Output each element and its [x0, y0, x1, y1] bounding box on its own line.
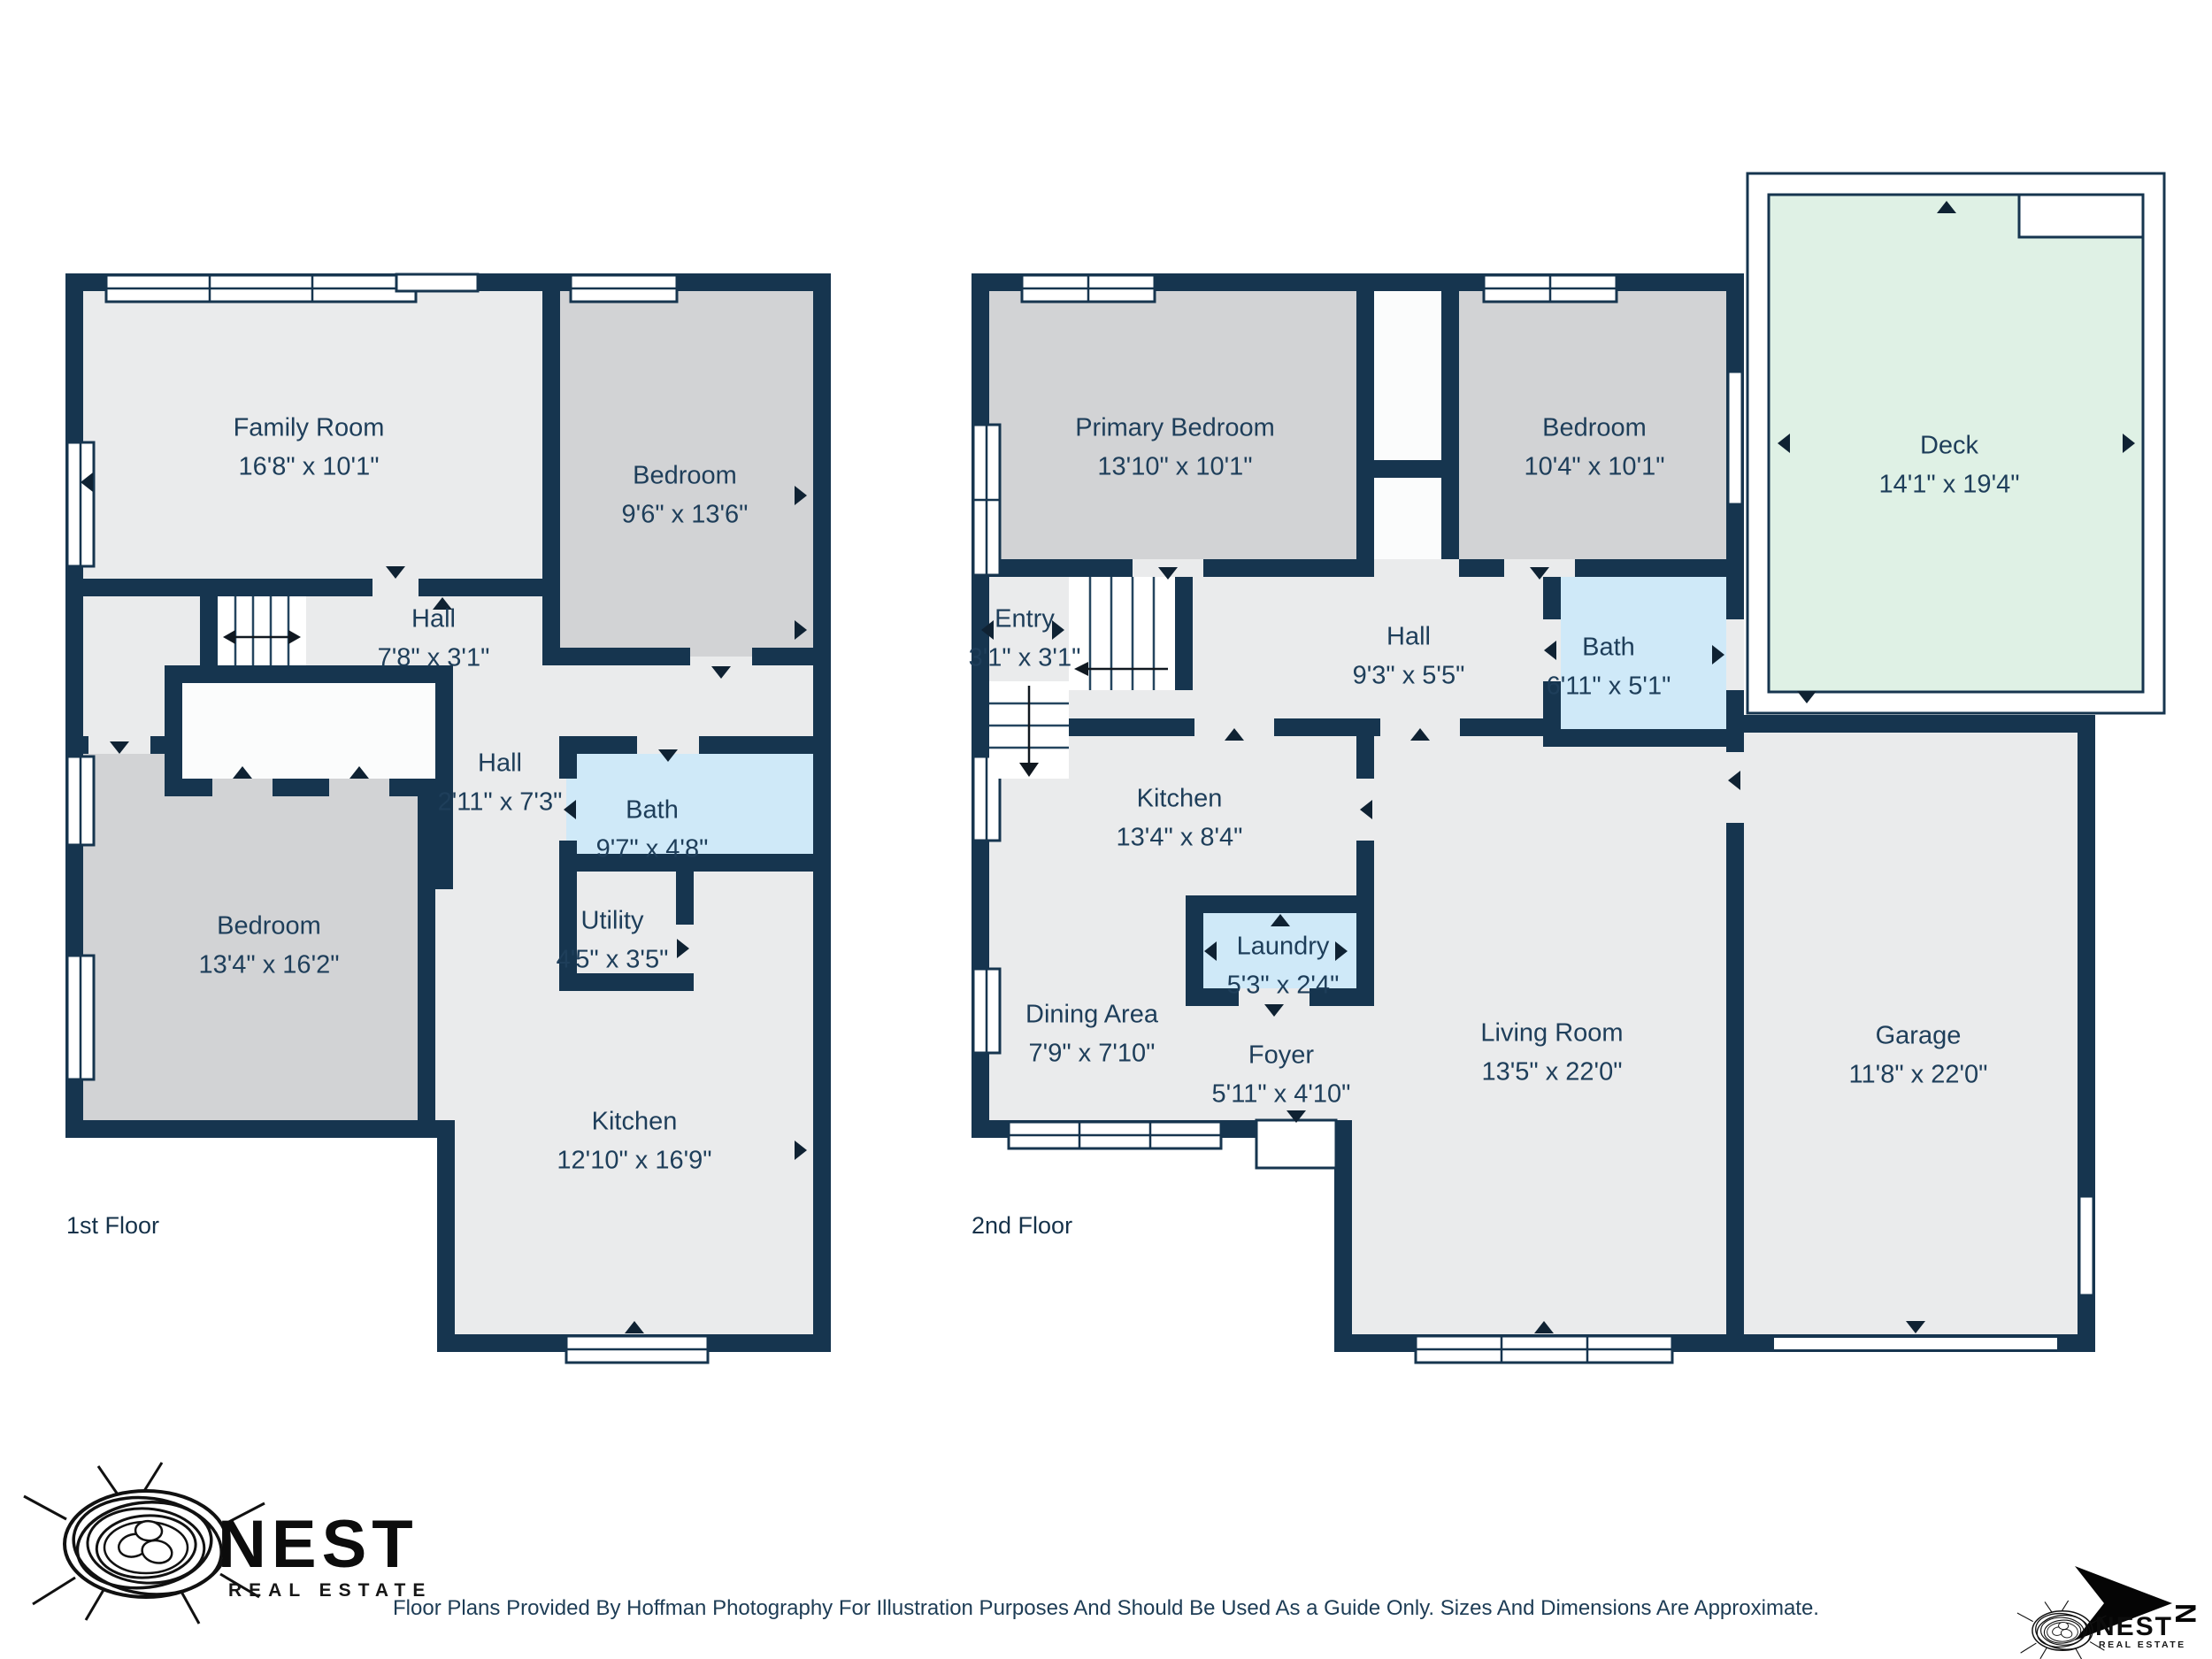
room-dims: 9'6" x 13'6": [622, 495, 749, 534]
wall-segment: [418, 796, 435, 1138]
wall-segment: [1374, 460, 1441, 478]
wall-segment: [1356, 913, 1374, 988]
room-dims: 7'9" x 7'10": [1025, 1034, 1158, 1073]
room-name: Bedroom: [1524, 410, 1664, 449]
wall-segment: [1575, 559, 1726, 577]
garage-side-window: [2079, 1196, 2093, 1295]
floor1-stairs: [218, 596, 306, 665]
room-name: Foyer: [1212, 1037, 1351, 1076]
room-label-hall-1f: Hall 7'8" x 3'1": [378, 601, 490, 678]
wall-segment: [1356, 841, 1374, 895]
room-name: Kitchen: [557, 1103, 711, 1142]
room-dims: 7'8" x 3'1": [378, 639, 490, 678]
wall-segment: [1186, 895, 1374, 913]
room-label-bedroom-1f: Bedroom 9'6" x 13'6": [622, 457, 749, 534]
stairs-area: [218, 596, 306, 665]
room-name: Hall: [438, 745, 563, 784]
wall-segment: [542, 273, 560, 665]
room-label-kitchen-1f: Kitchen 12'10" x 16'9": [557, 1103, 711, 1180]
room-dims: 12'10" x 16'9": [557, 1141, 711, 1180]
room-name: Utility: [557, 902, 669, 941]
wall-segment: [1726, 823, 1744, 1352]
room-name: Entry: [969, 601, 1081, 640]
wall-segment: [165, 779, 212, 796]
closet-under-stairs: [182, 683, 435, 779]
room-dims: 5'3" x 2'4": [1227, 966, 1340, 1005]
room-name: Bath: [596, 792, 709, 831]
floor-plan-page: N Family Room 16'8" x 10'1" Bedroom 9'6"…: [0, 0, 2212, 1659]
second-floor-plan: [972, 173, 2164, 1363]
wall-segment: [1336, 1120, 1352, 1138]
window: [1728, 372, 1742, 504]
front-door-opening: [1256, 1120, 1336, 1168]
room-label-kitchen-2f: Kitchen 13'4" x 8'4": [1117, 780, 1243, 857]
window: [396, 274, 478, 291]
wall-segment: [1356, 291, 1374, 559]
wall-segment: [1744, 715, 2095, 733]
room-name: Hall: [1353, 618, 1465, 657]
room-name: Primary Bedroom: [1075, 410, 1275, 449]
wall-segment: [1203, 559, 1374, 577]
wall-segment: [419, 579, 560, 596]
room-label-bedroom-2f: Bedroom 10'4" x 10'1": [1524, 410, 1664, 487]
wall-segment: [273, 779, 329, 796]
room-label-hall-2f: Hall 9'3" x 5'5": [1353, 618, 1465, 695]
room-dims: 14'1" x 19'4": [1878, 465, 2019, 504]
room-label-primary-bedroom: Primary Bedroom 13'10" x 10'1": [1075, 410, 1275, 487]
wall-segment: [699, 736, 813, 754]
wall-segment: [65, 1120, 455, 1138]
room-dims: 13'4" x 16'2": [198, 946, 339, 985]
room-label-laundry: Laundry 5'3" x 2'4": [1227, 928, 1340, 1005]
first-floor-title: 1st Floor: [66, 1212, 159, 1240]
second-floor-title: 2nd Floor: [972, 1212, 1072, 1240]
room-name: Bath: [1547, 629, 1671, 668]
room-dims: 10'4" x 10'1": [1524, 448, 1664, 487]
room-label-bath-1f: Bath 9'7" x 4'8": [596, 792, 709, 869]
room-dims: 5'11" x 4'10": [1212, 1075, 1351, 1114]
wall-segment: [1543, 577, 1561, 619]
wall-segment: [150, 736, 182, 754]
room-dims: 3'1" x 3'1": [969, 639, 1081, 678]
room-label-deck: Deck 14'1" x 19'4": [1878, 427, 2019, 504]
wall-segment: [165, 665, 182, 796]
room-name: Deck: [1878, 427, 2019, 466]
wall-segment: [1441, 291, 1459, 559]
nest-footer-subtitle: REAL ESTATE: [2099, 1640, 2186, 1650]
room-name: Kitchen: [1117, 780, 1243, 819]
room-label-bath-2f: Bath 6'11" x 5'1": [1547, 629, 1671, 706]
wall-segment: [1175, 577, 1193, 690]
wall-segment: [1274, 718, 1380, 736]
room-label-dining-area: Dining Area 7'9" x 7'10": [1025, 996, 1158, 1073]
room-dims: 13'4" x 8'4": [1117, 818, 1243, 857]
garage-door: [1774, 1338, 2057, 1349]
room-label-garage: Garage 11'8" x 22'0": [1849, 1018, 1988, 1094]
room-name: Dining Area: [1025, 996, 1158, 1035]
wall-segment: [542, 648, 690, 665]
room-label-hall-1f-lower: Hall 2'11" x 7'3": [438, 745, 563, 822]
room-dims: 13'10" x 10'1": [1075, 448, 1275, 487]
room-dims: 9'7" x 4'8": [596, 830, 709, 869]
room-label-foyer: Foyer 5'11" x 4'10": [1212, 1037, 1351, 1114]
floor-plan-drawing: N: [0, 0, 2212, 1659]
room-name: Living Room: [1480, 1015, 1623, 1054]
room-name: Bedroom: [198, 908, 339, 947]
room-name: Hall: [378, 601, 490, 640]
wall-segment: [1356, 736, 1374, 779]
disclaimer-text: Floor Plans Provided By Hoffman Photogra…: [0, 1596, 2212, 1621]
nest-footer-wordmark: NEST: [2095, 1612, 2173, 1642]
wall-segment: [559, 736, 637, 754]
room-name: Laundry: [1227, 928, 1340, 967]
room-dims: 4'5" x 3'5": [557, 941, 669, 979]
room-dims: 9'3" x 5'5": [1353, 657, 1465, 695]
room-name: Bedroom: [622, 457, 749, 496]
room-label-living-room: Living Room 13'5" x 22'0": [1480, 1015, 1623, 1092]
door-swing-arrow: [1797, 691, 1816, 703]
wall-segment: [752, 648, 831, 665]
room-label-entry: Entry 3'1" x 3'1": [969, 601, 1081, 678]
wall-segment: [437, 1120, 455, 1352]
room-dims: 11'8" x 22'0": [1849, 1056, 1988, 1094]
room-dims: 2'11" x 7'3": [438, 783, 563, 822]
wall-segment: [813, 273, 831, 1352]
room-label-bedroom-1f-lower: Bedroom 13'4" x 16'2": [198, 908, 339, 985]
closet-column: [1374, 291, 1441, 559]
wall-segment: [1543, 729, 1744, 747]
wall-segment: [1186, 913, 1203, 988]
wall-segment: [1459, 559, 1504, 577]
wall-segment: [65, 579, 373, 596]
room-dims: 6'11" x 5'1": [1547, 667, 1671, 706]
nest-logo-wordmark: NEST: [218, 1506, 419, 1583]
room-name: Family Room: [234, 410, 385, 449]
room-dims: 13'5" x 22'0": [1480, 1053, 1623, 1092]
wall-segment: [1334, 1138, 1352, 1352]
floor2-stairs-down: [989, 681, 1069, 779]
room-label-family-room: Family Room 16'8" x 10'1": [234, 410, 385, 487]
room-dims: 16'8" x 10'1": [234, 448, 385, 487]
room-name: Garage: [1849, 1018, 1988, 1056]
wall-segment: [65, 736, 88, 754]
floor2-stairs-up: [1069, 577, 1175, 690]
deck-stair-opening: [2019, 195, 2143, 237]
wall-segment: [676, 872, 694, 925]
room-label-utility: Utility 4'5" x 3'5": [557, 902, 669, 979]
